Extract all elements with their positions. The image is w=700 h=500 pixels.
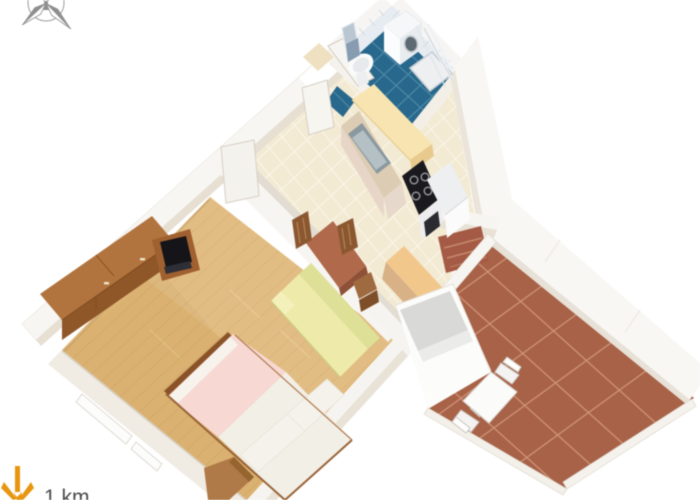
svg-text:1 km: 1 km xyxy=(44,486,90,500)
